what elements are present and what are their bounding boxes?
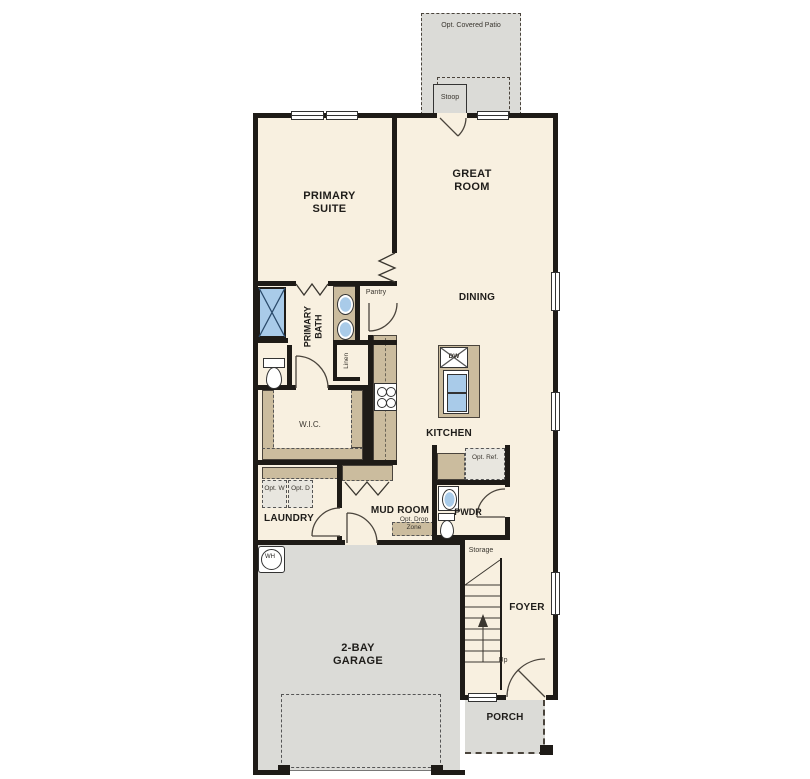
pwdr-label: PWDR — [444, 507, 492, 518]
wall-left — [253, 113, 258, 775]
wall-garage-right — [460, 545, 465, 700]
linen-label: Linen — [343, 341, 351, 381]
bath-toilet-bowl — [266, 367, 282, 389]
dining-label: DINING — [447, 292, 507, 304]
wall-stairs-right — [500, 558, 502, 690]
gap-bath-opening — [296, 281, 328, 286]
porch-label: PORCH — [476, 712, 534, 724]
patio-label: Opt. Covered Patio — [428, 22, 514, 30]
wic-shelf-right — [351, 390, 363, 448]
water-heater-label: WH — [259, 554, 281, 561]
garage-door-stub-left — [278, 765, 290, 775]
pwdr-toilet-bowl — [440, 520, 454, 539]
window-primary-suite-2 — [326, 111, 358, 120]
wic-shelf-bottom — [262, 448, 363, 460]
opt-refrigerator-box — [465, 448, 505, 480]
garage-door-stub-right — [431, 765, 443, 775]
opt-washer-label: Opt. W — [263, 485, 286, 493]
gap-laundry-door — [337, 508, 342, 536]
great-room-label: GREAT ROOM — [443, 168, 501, 194]
mudroom-counter — [342, 465, 393, 481]
stoop-label: Stoop — [434, 94, 466, 102]
laundry-shelf — [262, 467, 338, 479]
wall-wic-right — [363, 390, 368, 465]
garage-label: 2-BAY GARAGE — [318, 642, 398, 668]
gap-mudroom-garage-door — [345, 540, 377, 545]
burner-icon — [386, 398, 396, 408]
primary-suite-label: PRIMARY SUITE — [292, 190, 367, 216]
window-greatroom-top — [477, 111, 509, 120]
wic-label: W.I.C. — [285, 420, 335, 429]
gap-wic-door — [296, 385, 328, 390]
wall-suite-greatroom — [392, 113, 397, 253]
wall-linen-left — [333, 345, 337, 381]
laundry-label: LAUNDRY — [254, 513, 324, 525]
opt-ref-label: Opt. Ref. — [469, 454, 501, 462]
wall-shower-bottom — [258, 338, 288, 343]
pwdr-counter — [437, 453, 465, 480]
gap-stoop-door — [437, 113, 467, 118]
drop-zone-label: Opt. Drop Zone — [392, 516, 436, 531]
wall-kitchen-counter-back — [368, 335, 373, 465]
island-sink-basin-1 — [447, 374, 467, 393]
island-sink-basin-2 — [447, 393, 467, 412]
shower-fixture — [258, 287, 286, 338]
opt-dryer-label: Opt. D — [289, 485, 312, 493]
range-fixture — [374, 383, 397, 411]
stairs-up-label: Up — [493, 657, 513, 665]
primary-bath-label: PRIMARY BATH — [302, 297, 323, 357]
storage-label: Storage — [463, 547, 499, 555]
wall-pwdr-top — [432, 480, 510, 485]
gap-garage-door — [290, 770, 431, 775]
island-sink — [443, 370, 469, 414]
window-greatroom-right — [551, 272, 560, 311]
window-dining-right — [551, 392, 560, 431]
vanity-sink-2 — [337, 319, 354, 340]
foyer-label: FOYER — [505, 602, 549, 614]
porch-post — [540, 745, 553, 755]
gap-front-door — [506, 695, 546, 700]
window-porch-front — [468, 693, 497, 702]
window-primary-suite-1 — [291, 111, 324, 120]
wall-wic-bottom — [253, 460, 397, 465]
garage-door-dashed-area — [281, 694, 441, 768]
burner-icon — [386, 387, 396, 397]
gap-pantry-door — [368, 300, 373, 332]
dishwasher-label: DW — [442, 353, 466, 361]
window-foyer-right — [551, 572, 560, 615]
floor-plan: Opt. Covered Patio Stoop PRIMARY SUITE G… — [0, 0, 810, 779]
wall-toilet-nook — [287, 345, 292, 390]
pantry-label: Pantry — [357, 289, 395, 297]
kitchen-label: KITCHEN — [419, 428, 479, 440]
porch-area — [465, 700, 545, 754]
vanity-sink-1 — [337, 294, 354, 315]
gap-pwdr-door — [505, 487, 510, 517]
